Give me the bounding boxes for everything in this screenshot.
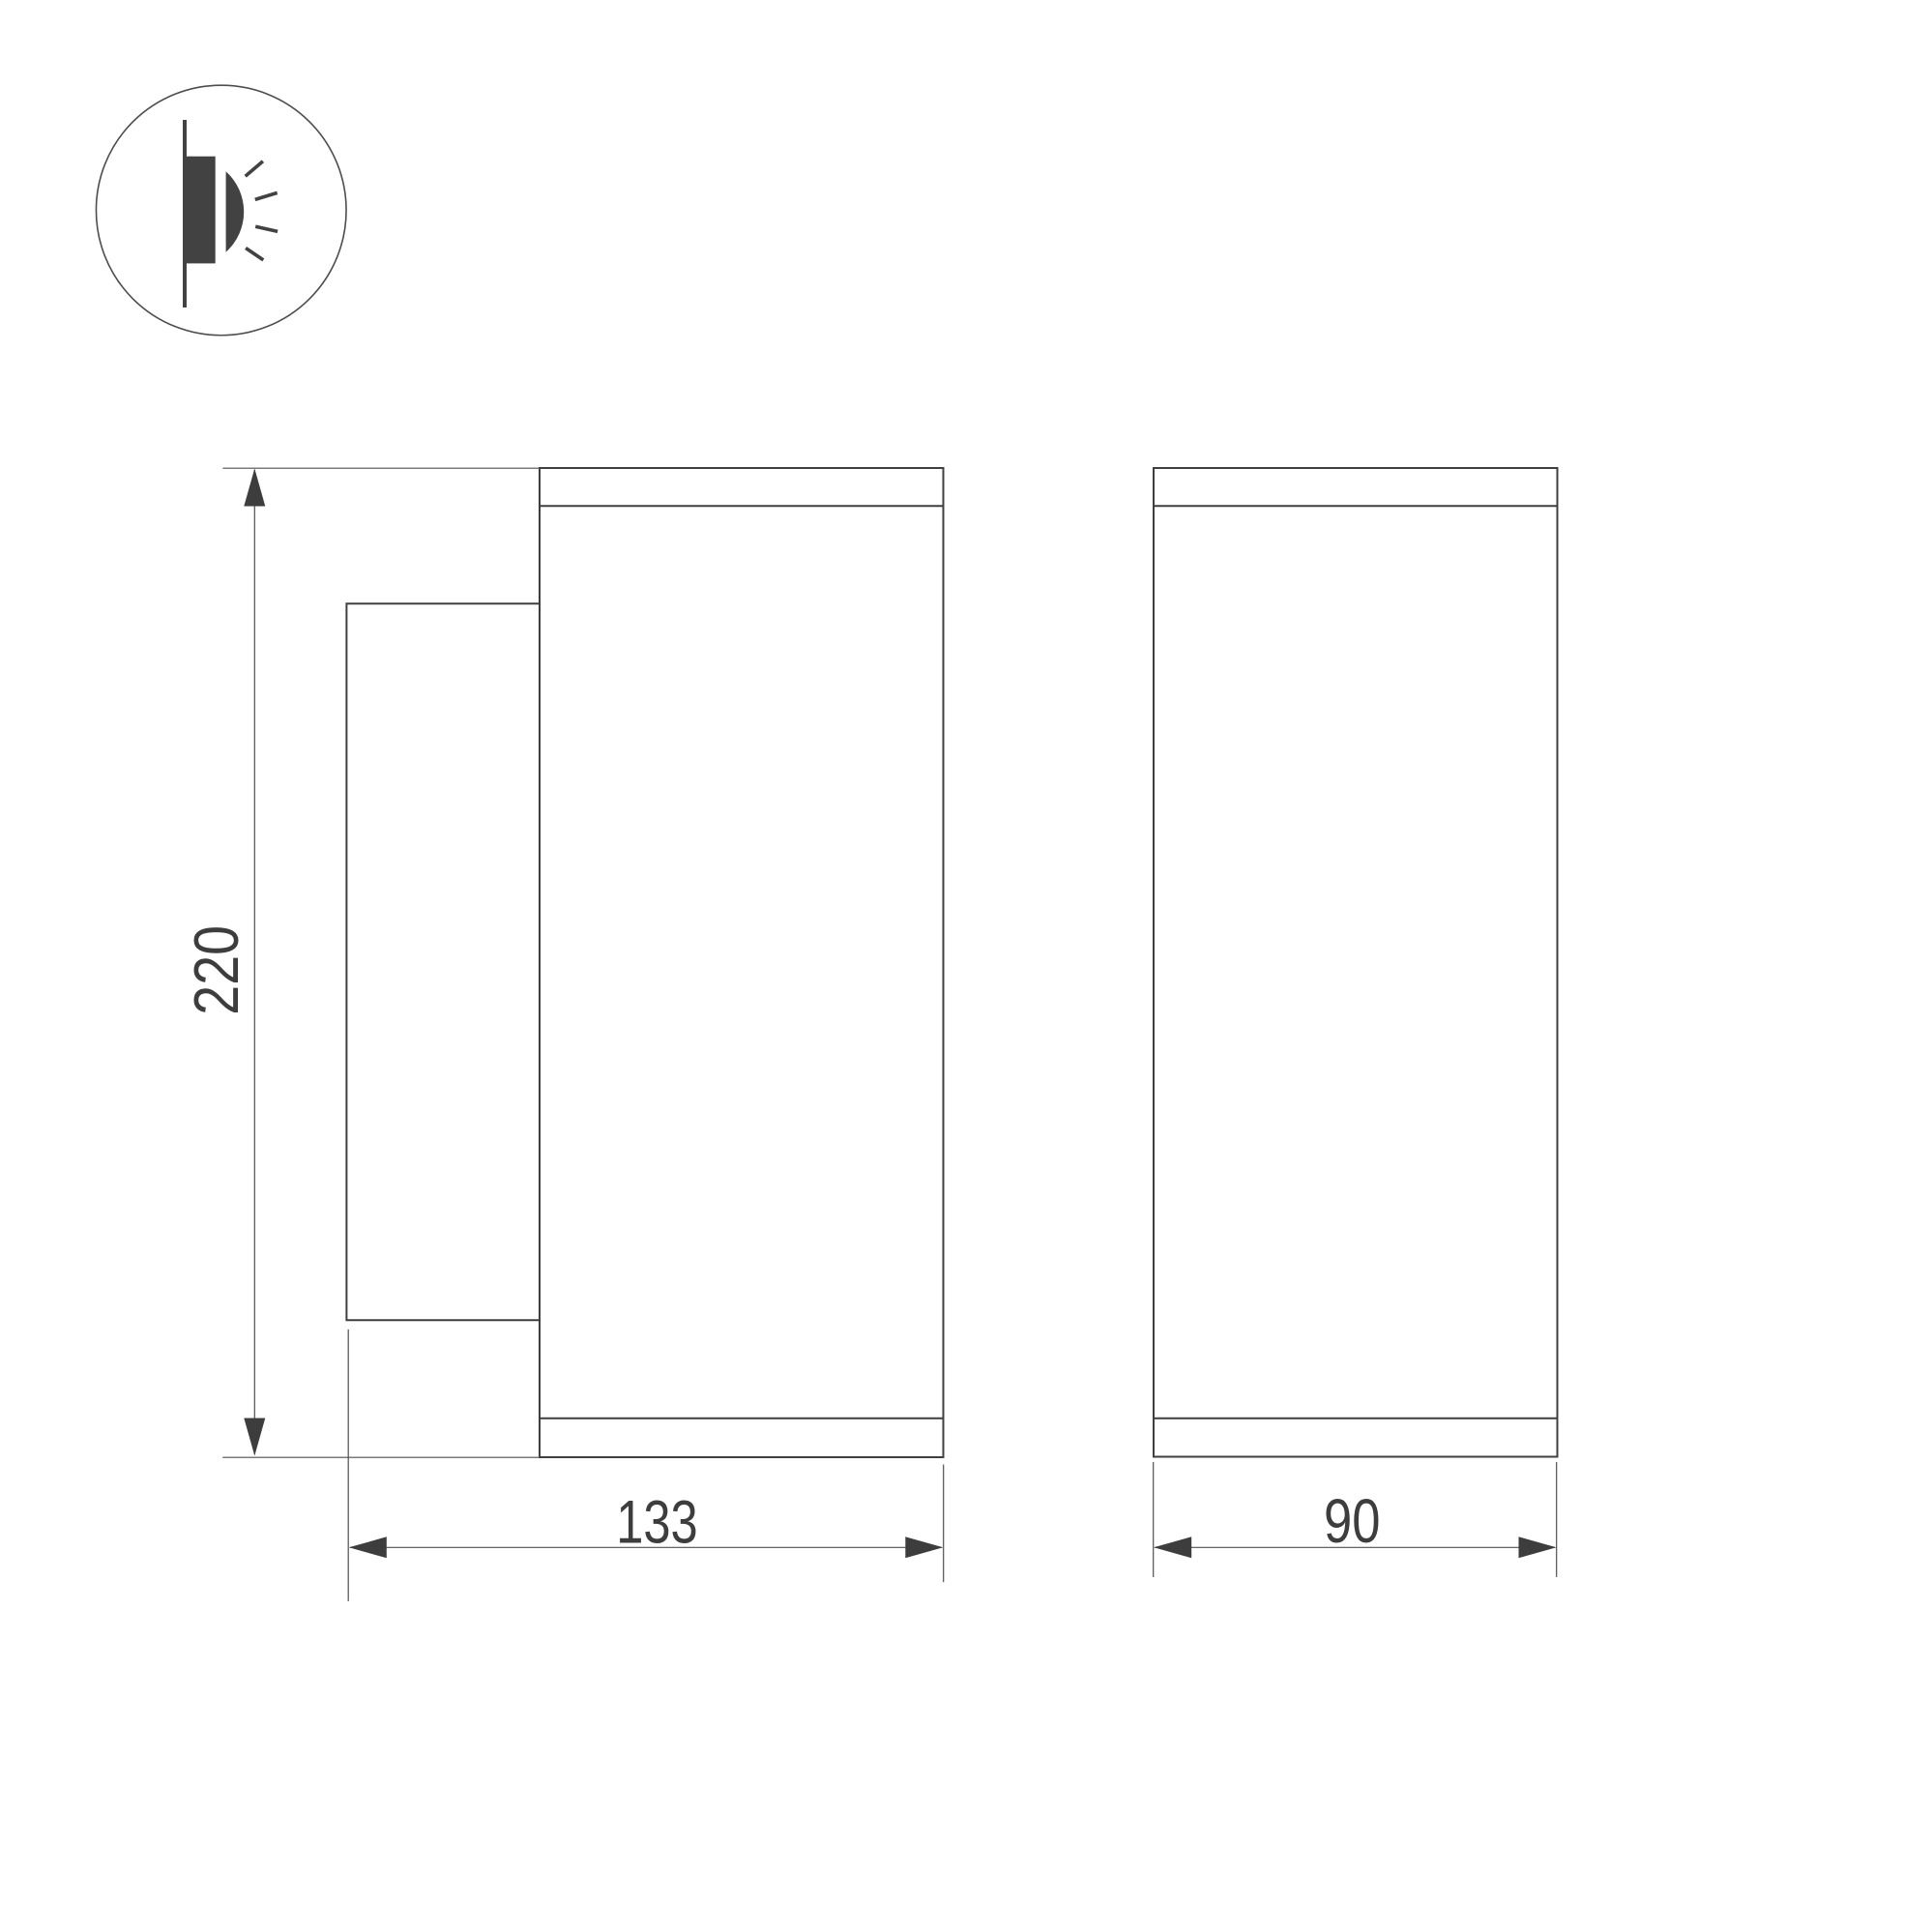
svg-text:133: 133 bbox=[616, 1488, 698, 1556]
svg-text:90: 90 bbox=[1324, 1486, 1381, 1556]
svg-text:220: 220 bbox=[181, 925, 251, 1015]
